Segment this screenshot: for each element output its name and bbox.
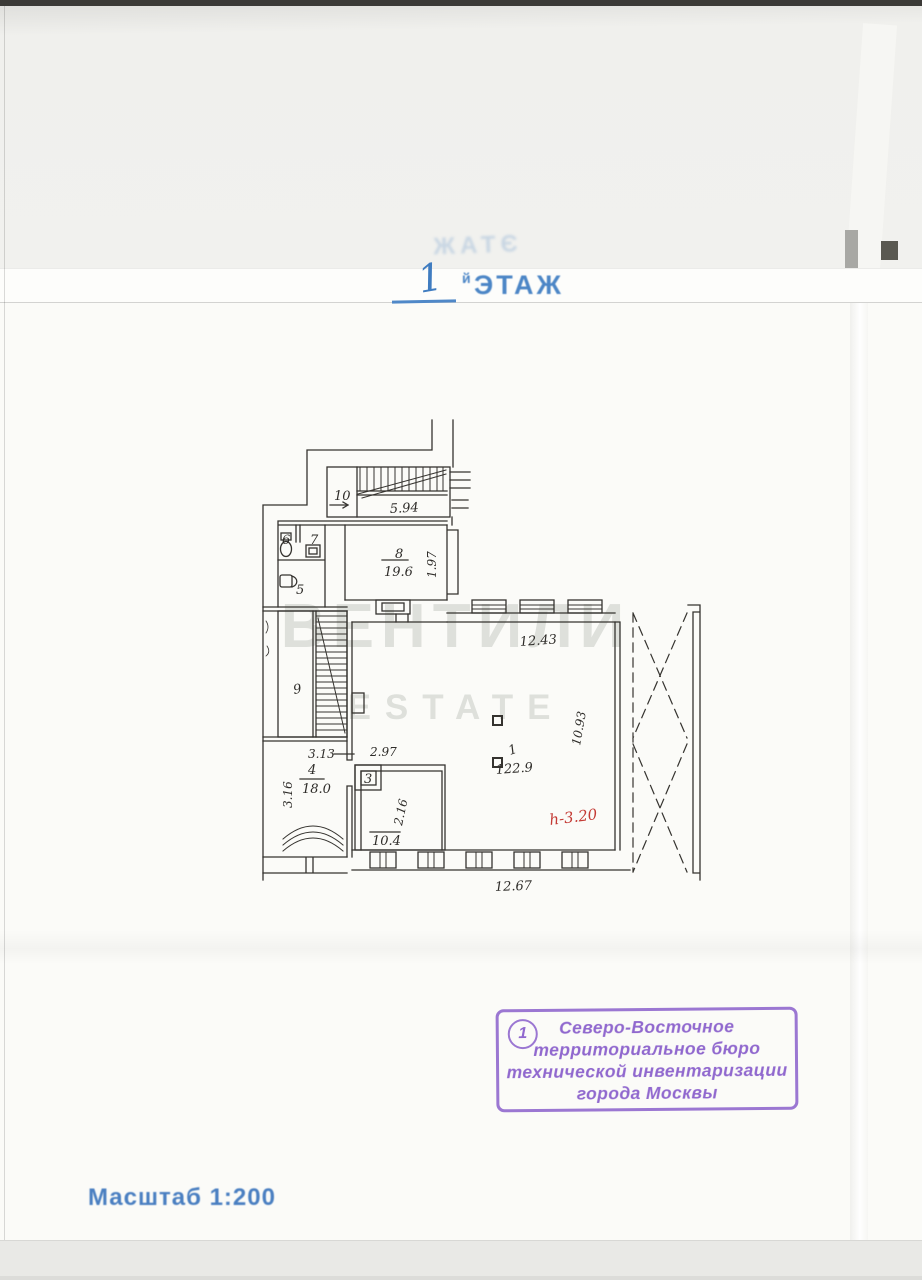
room-3-label: 3 bbox=[364, 772, 372, 787]
paper-upper-area bbox=[0, 6, 922, 268]
room-7-label: 7 bbox=[310, 533, 319, 548]
dim-594: 5.94 bbox=[389, 500, 419, 516]
paper-bottom-strip bbox=[0, 1240, 922, 1280]
paper-crease bbox=[850, 303, 868, 1240]
wc-block bbox=[263, 521, 447, 611]
room-1-area: 122.9 bbox=[495, 760, 533, 778]
room-4-label: 4 bbox=[307, 763, 316, 778]
scale-label: Масштаб 1:200 bbox=[88, 1184, 276, 1212]
floor-plan: 10 5.94 6 7 5 8 19.6 1.97 9 3.13 2.97 4 … bbox=[250, 408, 720, 908]
stamp-line-3: технической инвентаризации bbox=[499, 1059, 795, 1084]
floor-suffix: й bbox=[462, 270, 471, 286]
room-4-area: 18.0 bbox=[302, 782, 331, 797]
floor-stamp: 1 й ЭТАЖ bbox=[386, 258, 586, 308]
dim-313: 3.13 bbox=[308, 747, 335, 761]
room-8-label: 8 bbox=[395, 547, 403, 562]
floor-word: ЭТАЖ bbox=[474, 270, 564, 301]
paper-bottom-edge bbox=[0, 1276, 922, 1280]
floor-number-handwritten: 1 bbox=[414, 254, 445, 302]
scanned-page: ЭТАЖ 1 й ЭТАЖ ВЕНТИЛИ ESTATE bbox=[0, 0, 922, 1280]
floor-number-underline bbox=[392, 299, 456, 303]
plan-labels: 10 5.94 6 7 5 8 19.6 1.97 9 3.13 2.97 4 … bbox=[281, 489, 599, 895]
dim-1093: 10.93 bbox=[569, 710, 589, 747]
dim-297: 2.97 bbox=[369, 745, 397, 759]
paper-edge-line bbox=[4, 6, 5, 1280]
stamp-line-1: Северо-Восточное bbox=[499, 1015, 795, 1040]
room-10-label: 10 bbox=[334, 489, 351, 504]
dim-197: 1.97 bbox=[425, 551, 439, 578]
room-9-label: 9 bbox=[292, 682, 303, 698]
annex-dashed bbox=[633, 605, 700, 880]
room-8-area: 19.6 bbox=[384, 565, 413, 580]
bti-stamp: 1 Северо-Восточное территориальное бюро … bbox=[496, 1007, 799, 1113]
dim-1243: 12.43 bbox=[519, 632, 557, 650]
toilet-side-icon bbox=[280, 575, 297, 587]
dim-216: 2.16 bbox=[391, 797, 411, 827]
room-6-label: 6 bbox=[282, 533, 290, 548]
floor-plan-drawing bbox=[263, 420, 700, 880]
room-2-area: 10.4 bbox=[372, 834, 401, 849]
scan-mark bbox=[881, 241, 898, 260]
height-note: h-3.20 bbox=[548, 805, 598, 829]
paper-crease bbox=[0, 930, 922, 964]
room1-outline bbox=[352, 600, 630, 870]
room-1-label: 1 bbox=[507, 742, 520, 759]
stamp-line-2: территориальное бюро bbox=[499, 1037, 795, 1062]
dim-1267: 12.67 bbox=[495, 879, 533, 895]
room-5-label: 5 bbox=[296, 583, 304, 598]
double-door-arcs bbox=[283, 826, 343, 851]
dim-316: 3.16 bbox=[281, 781, 295, 808]
staircase-lower bbox=[266, 611, 347, 737]
stamp-line-4: города Москвы bbox=[499, 1081, 795, 1106]
scan-mark bbox=[845, 230, 858, 268]
